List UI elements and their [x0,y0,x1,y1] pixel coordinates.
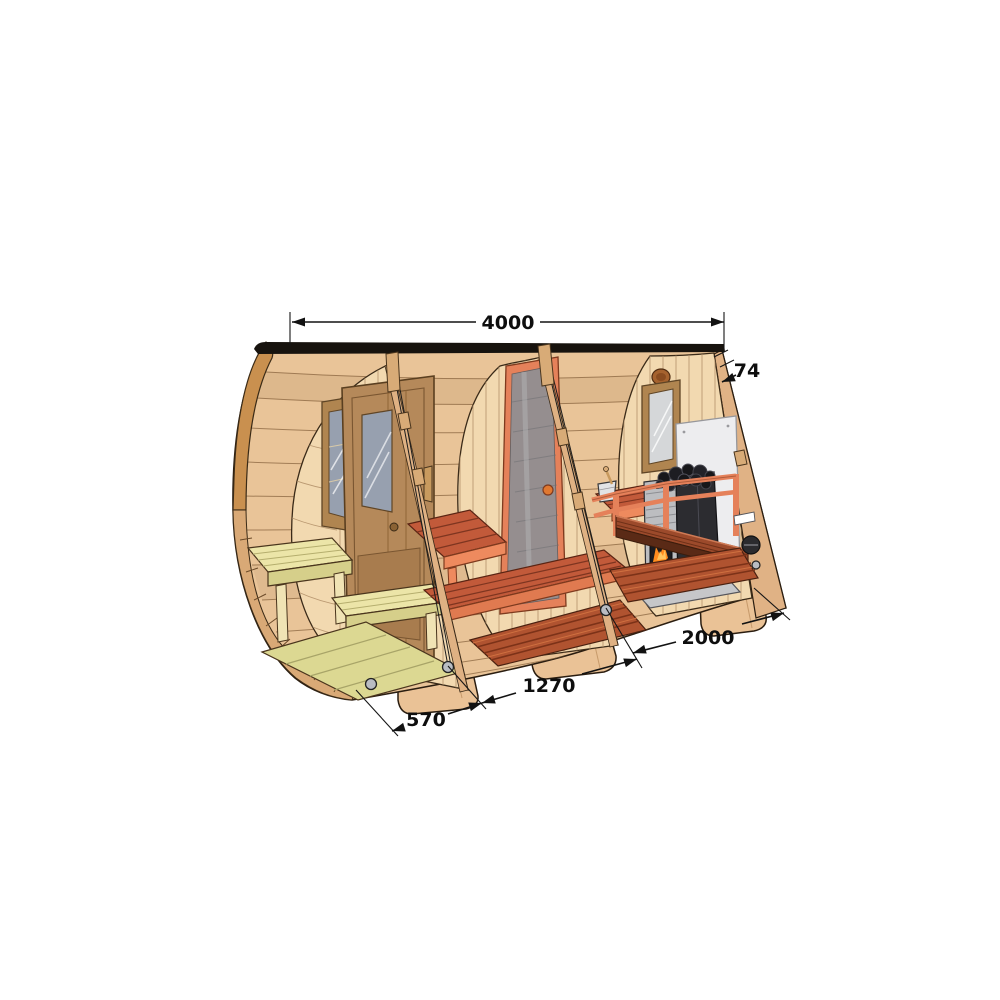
sauna-window-glass [649,389,673,464]
diagram-canvas: 4000 74 570 1270 2000 [0,0,1000,1000]
dimension-overall-length-label: 4000 [482,312,535,334]
door-lock [390,523,398,531]
glass-door-knob [543,485,553,495]
barrel-sauna-cutaway-diagram: 4000 74 570 1270 2000 [0,0,1000,1000]
dimension-porch-length-label: 570 [406,709,446,731]
dimension-sauna-room-length-label: 2000 [682,627,735,649]
roof-edge [254,342,725,354]
dimension-wall-thickness-label: 74 [734,360,760,382]
dimension-middle-room-length-label: 1270 [523,675,576,697]
caster-wheel [366,679,377,690]
sauna-window [642,380,680,473]
cut-post [386,352,400,392]
caster-wheel [752,561,760,569]
